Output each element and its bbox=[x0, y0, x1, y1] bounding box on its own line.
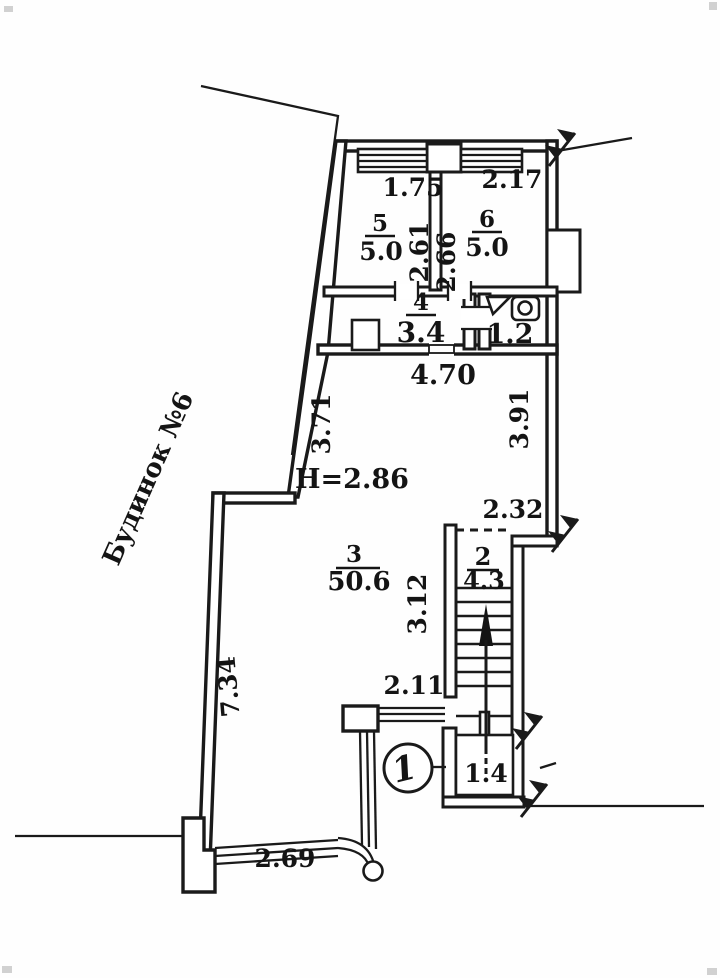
floorplan-page: 1 Будинок №6 1.75 2.61 5 5.0 2.17 2.66 6… bbox=[0, 0, 720, 978]
dim-room5-depth: 2.61 bbox=[405, 222, 434, 283]
railing-curve-inner bbox=[338, 848, 369, 866]
porch-pier bbox=[343, 706, 378, 731]
room6-number: 6 bbox=[479, 206, 495, 233]
entrance-node: 1 bbox=[384, 744, 446, 792]
neighbor-building-label: Будинок №6 bbox=[97, 388, 200, 570]
wall-stair-left-lower bbox=[443, 728, 456, 800]
porch-steps bbox=[378, 708, 445, 721]
scan-artifact bbox=[4, 6, 13, 12]
wall-right-cap bbox=[512, 536, 557, 546]
dim-railing: 2.69 bbox=[255, 844, 316, 873]
dim-stair-side: 3.12 bbox=[403, 574, 432, 635]
room6-area: 5.0 bbox=[465, 233, 509, 262]
window-room5 bbox=[358, 149, 427, 172]
dim-porch: 2.11 bbox=[384, 671, 445, 700]
wall-stair-left bbox=[445, 525, 456, 697]
toilet-bowl-icon bbox=[519, 302, 532, 315]
room3-area: 50.6 bbox=[327, 567, 390, 597]
room4-number: 4 bbox=[413, 289, 429, 316]
wc-area-label: 1.2 bbox=[487, 319, 534, 350]
wall-right bbox=[547, 141, 557, 545]
cabinet-box bbox=[352, 320, 379, 350]
vestibule-area-label: 1.4 bbox=[464, 759, 508, 788]
scan-artifact bbox=[2, 966, 12, 973]
tick-mark bbox=[540, 763, 556, 768]
dim-hall-top: 4.70 bbox=[410, 360, 476, 391]
scan-artifact bbox=[707, 968, 717, 975]
wall-bottom bbox=[443, 797, 524, 807]
dim-room6-depth: 2.66 bbox=[432, 232, 461, 293]
dim-nook: 2.32 bbox=[483, 495, 544, 524]
ceiling-height-label: H=2.86 bbox=[295, 464, 409, 495]
newel-post-icon bbox=[364, 862, 383, 881]
dim-room5-width: 1.75 bbox=[383, 173, 444, 202]
dim-left-upper: 3.71 bbox=[307, 394, 336, 455]
room5-number: 5 bbox=[372, 210, 388, 237]
room5-area: 5.0 bbox=[359, 237, 403, 266]
scan-artifact bbox=[709, 2, 717, 10]
room3-number: 3 bbox=[346, 541, 362, 568]
dim-left-lower: 7.34 bbox=[211, 655, 245, 718]
wc-fixtures bbox=[487, 297, 539, 320]
dim-right-upper: 3.91 bbox=[505, 389, 534, 450]
room2-area: 4.3 bbox=[463, 566, 505, 595]
wall-niche bbox=[547, 230, 580, 292]
floorplan-drawing: 1 Будинок №6 1.75 2.61 5 5.0 2.17 2.66 6… bbox=[0, 0, 720, 978]
dim-room6-width: 2.17 bbox=[482, 165, 543, 194]
room4-area: 3.4 bbox=[397, 316, 446, 349]
window-pier bbox=[427, 144, 461, 172]
railing-vertical bbox=[360, 731, 376, 849]
